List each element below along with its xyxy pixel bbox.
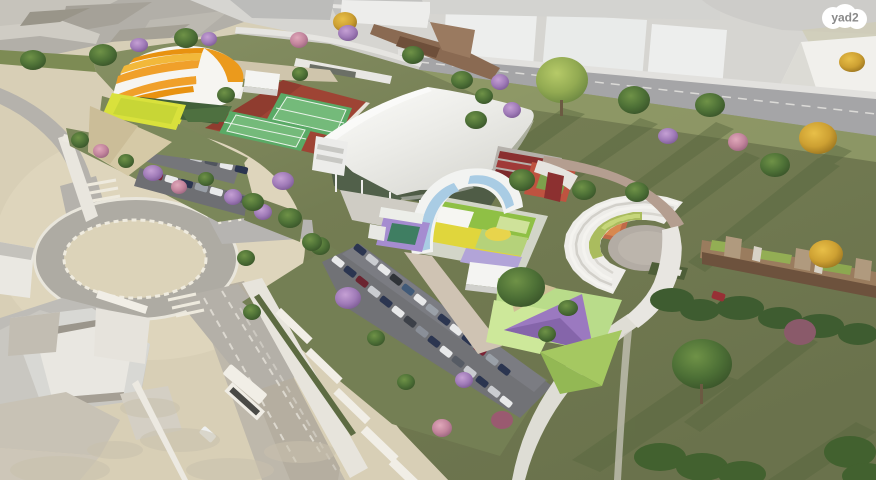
svg-text:yad2: yad2	[831, 11, 859, 25]
